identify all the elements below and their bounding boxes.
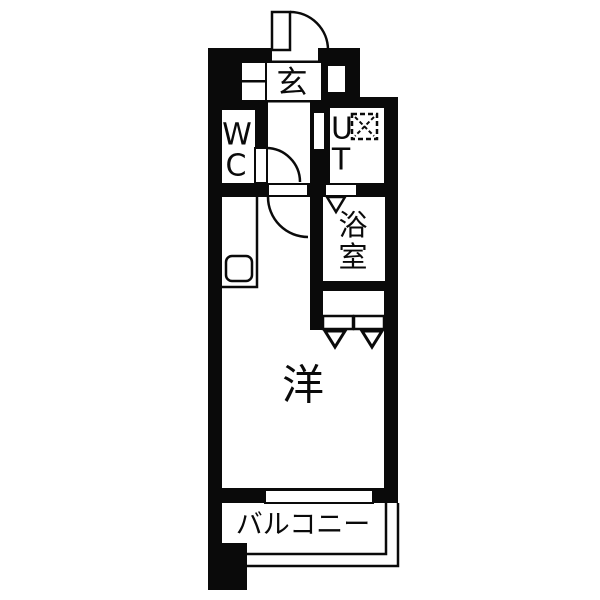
kitchen-sink-icon bbox=[226, 256, 252, 281]
utility-door-leaf bbox=[313, 112, 325, 150]
living-door-leaf bbox=[268, 184, 308, 196]
sliding-window-icon bbox=[265, 490, 373, 503]
room-hallway bbox=[268, 102, 310, 183]
label-utility-line1: U bbox=[331, 112, 353, 147]
wall-right-lower bbox=[384, 330, 398, 502]
shoe-cabinet-shelf-line bbox=[242, 80, 265, 83]
room-living-left bbox=[222, 197, 310, 488]
wall-foot-block bbox=[208, 543, 247, 590]
label-balcony: バルコニー bbox=[236, 510, 370, 541]
bath-door-leaf bbox=[325, 184, 357, 196]
floor-plan-canvas: 玄 W C U T 浴 室 洋 バルコニー bbox=[0, 0, 600, 600]
label-wc-line2: C bbox=[226, 149, 247, 184]
floor-plan: 玄 W C U T 浴 室 洋 バルコニー bbox=[0, 0, 600, 600]
washing-machine-pan-icon bbox=[352, 114, 377, 139]
room-closet bbox=[323, 291, 384, 316]
entrance-threshold-line bbox=[272, 61, 318, 64]
label-bath-line1: 浴 bbox=[338, 208, 367, 242]
label-wc-line1: W bbox=[222, 118, 252, 153]
wall-top-right bbox=[318, 48, 360, 65]
closet-door-panel-right bbox=[354, 316, 384, 329]
closet-door-panel-left bbox=[323, 316, 353, 329]
wc-door-leaf bbox=[255, 148, 267, 183]
label-entrance: 玄 bbox=[277, 65, 308, 101]
label-living-room: 洋 bbox=[282, 361, 324, 410]
label-utility-line2: T bbox=[331, 143, 351, 178]
label-bath-line2: 室 bbox=[338, 240, 367, 274]
room-side-box bbox=[328, 66, 345, 92]
entrance-door-leaf bbox=[272, 12, 290, 50]
exterior-notch bbox=[360, 63, 398, 97]
